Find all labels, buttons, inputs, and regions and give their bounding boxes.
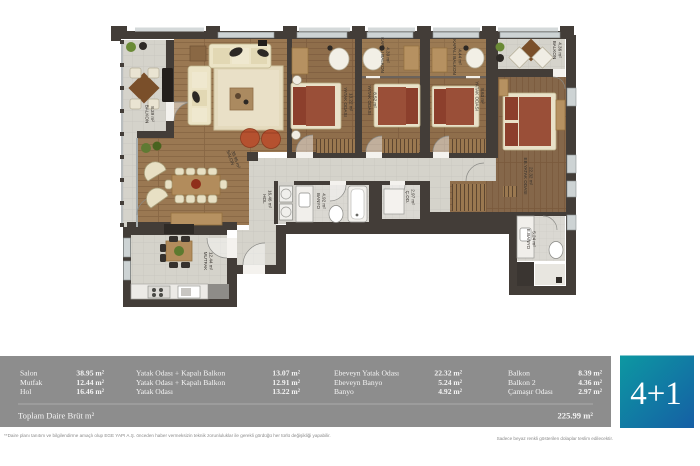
svg-text:BALKON: BALKON (145, 105, 150, 124)
svg-text:22.32 m²: 22.32 m² (434, 369, 462, 378)
svg-text:Toplam Daire Brüt m²: Toplam Daire Brüt m² (18, 411, 95, 421)
svg-text:YATAK ODASI: YATAK ODASI (367, 85, 372, 115)
svg-text:5.24 m²: 5.24 m² (438, 378, 463, 387)
svg-text:16.46 m²: 16.46 m² (76, 387, 104, 396)
svg-text:BANYO: BANYO (316, 193, 321, 210)
svg-text:5.24 m²: 5.24 m² (532, 231, 537, 247)
svg-text:**Daire planı tanıtım ve bilgi: **Daire planı tanıtım ve bilgilendirme a… (4, 433, 331, 438)
svg-text:4.92 m²: 4.92 m² (322, 193, 327, 209)
svg-text:Sadece beyaz renkli gösterilen: Sadece beyaz renkli gösterilen dolaplar … (497, 436, 613, 441)
svg-text:8.39 m²: 8.39 m² (578, 369, 603, 378)
svg-text:4.36 m²: 4.36 m² (558, 42, 563, 58)
svg-text:KAPALI BALKON: KAPALI BALKON (380, 37, 385, 73)
svg-text:Banyo: Banyo (334, 387, 354, 396)
svg-text:Yatak Odası + Kapalı Balkon: Yatak Odası + Kapalı Balkon (136, 378, 225, 387)
svg-text:13.22 m²: 13.22 m² (349, 93, 354, 112)
svg-text:12.91 m²: 12.91 m² (272, 378, 300, 387)
svg-text:8.63 m²: 8.63 m² (480, 88, 485, 104)
svg-text:Balkon: Balkon (508, 369, 530, 378)
svg-text:Salon: Salon (20, 369, 38, 378)
svg-text:Ç.OD.: Ç.OD. (405, 191, 410, 204)
svg-text:Yatak Odası: Yatak Odası (136, 387, 173, 396)
svg-text:Çamaşır Odası: Çamaşır Odası (508, 387, 553, 396)
svg-text:KAPALI BALKON: KAPALI BALKON (452, 39, 457, 75)
svg-text:225.99 m²: 225.99 m² (557, 411, 593, 421)
svg-text:12.44 m²: 12.44 m² (76, 378, 104, 387)
svg-text:Ebeveyn Yatak Odası: Ebeveyn Yatak Odası (334, 369, 399, 378)
svg-text:16.46 m²: 16.46 m² (268, 190, 273, 209)
svg-text:8.39 m²: 8.39 m² (150, 106, 155, 122)
svg-text:Ebeveyn Banyo: Ebeveyn Banyo (334, 378, 382, 387)
svg-text:4.39 m²: 4.39 m² (386, 47, 391, 63)
svg-text:4.36 m²: 4.36 m² (578, 378, 603, 387)
svg-text:2.97 m²: 2.97 m² (578, 387, 603, 396)
svg-text:12.44 m²: 12.44 m² (209, 252, 214, 271)
svg-text:4+1: 4+1 (630, 376, 682, 412)
svg-text:8.52 m²: 8.52 m² (373, 92, 378, 108)
svg-text:YATAK ODASI: YATAK ODASI (475, 81, 480, 111)
svg-text:4.92 m²: 4.92 m² (438, 387, 463, 396)
svg-text:HOL: HOL (262, 194, 267, 204)
svg-text:2.97 m²: 2.97 m² (411, 189, 416, 205)
svg-text:22.32 m²: 22.32 m² (529, 167, 534, 186)
svg-text:YATAK ODASI: YATAK ODASI (343, 87, 348, 117)
svg-text:13.07 m²: 13.07 m² (272, 369, 300, 378)
svg-text:EB.YATAK ODASI: EB.YATAK ODASI (523, 157, 528, 194)
svg-text:38.95 m²: 38.95 m² (76, 369, 104, 378)
svg-text:BALKON: BALKON (552, 41, 557, 60)
svg-text:13.22 m²: 13.22 m² (272, 387, 300, 396)
svg-text:Hol: Hol (20, 387, 31, 396)
svg-text:E.BANYO: E.BANYO (526, 229, 531, 250)
svg-text:MUTFAK: MUTFAK (203, 252, 208, 272)
svg-text:Balkon 2: Balkon 2 (508, 378, 536, 387)
svg-text:Yatak Odası + Kapalı Balkon: Yatak Odası + Kapalı Balkon (136, 369, 225, 378)
svg-text:4.44 m²: 4.44 m² (458, 49, 463, 65)
svg-text:Mutfak: Mutfak (20, 378, 43, 387)
